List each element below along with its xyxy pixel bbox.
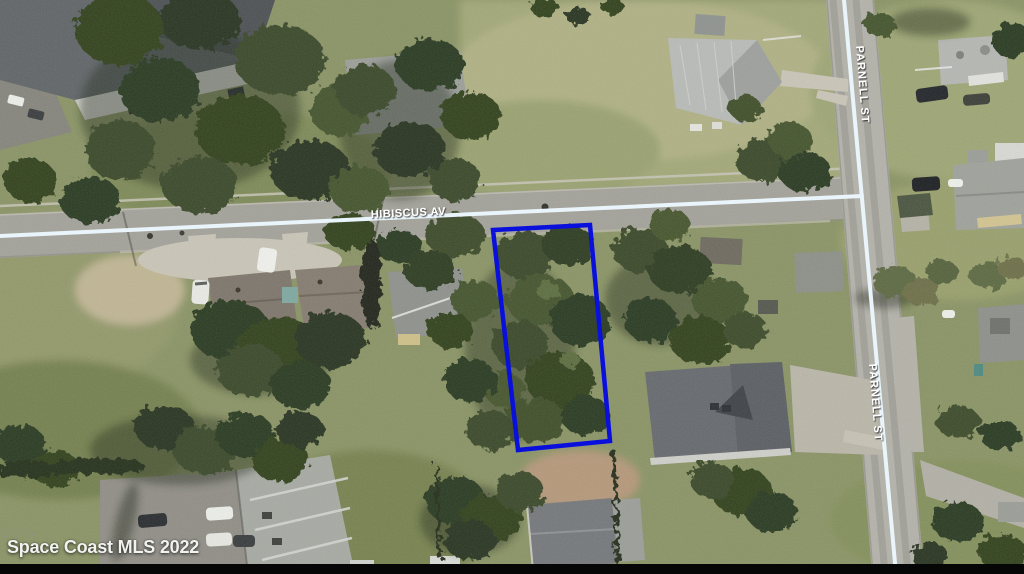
aerial-map: HIBISCUS AV PARNELL ST PARNELL ST 27073 … — [0, 0, 1024, 574]
bottom-toolbar — [0, 564, 1024, 574]
mls-watermark: Space Coast MLS 2022 — [7, 537, 199, 558]
aerial-photo: HIBISCUS AV PARNELL ST PARNELL ST — [0, 0, 1024, 574]
